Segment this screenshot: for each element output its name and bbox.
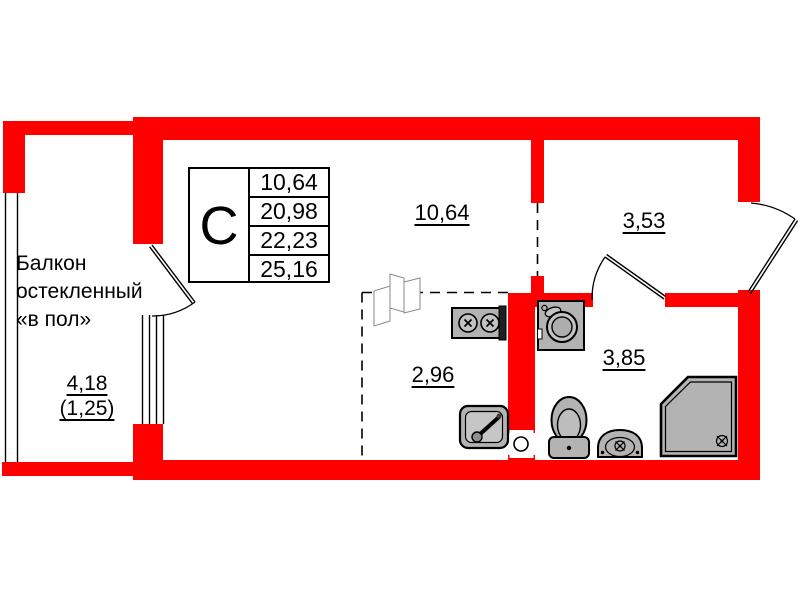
apartment-info-table: С 10,64 20,98 22,23 25,16: [188, 167, 330, 283]
entrance-door: [748, 203, 798, 294]
wall-balcony-bottom: [2, 462, 133, 476]
info-table-row: 25,16: [250, 256, 328, 283]
wall-balcony-divider-pier: [133, 117, 163, 244]
bathroom-door: [592, 255, 666, 301]
balcony-reduced-area-label: (1,25): [42, 397, 132, 421]
info-table-row: 22,23: [250, 227, 328, 256]
basin-bolt: [636, 451, 639, 454]
vent-circle: [514, 437, 528, 451]
door-leaf: [607, 255, 666, 297]
folding-door-panel: [374, 286, 390, 326]
kitchen-area-label: 2,96: [395, 363, 471, 387]
wall-balcony-left-pier: [3, 121, 25, 193]
washing-machine-icon: [538, 301, 585, 350]
washbasin-icon: [598, 430, 642, 457]
door-leaf: [605, 257, 664, 299]
wall-window-pier: [133, 424, 163, 464]
toilet-icon: [549, 397, 589, 458]
basin-bolt: [601, 451, 604, 454]
wall-stub-top-middle: [531, 139, 544, 203]
balcony-area-label: 4,18: [48, 372, 126, 396]
living-room-area-label: 10,64: [398, 201, 486, 225]
balcony-caption-line: «в пол»: [16, 306, 206, 334]
hallway-area-label: 3,53: [606, 209, 682, 233]
basin-body: [598, 430, 642, 457]
door-leaf: [751, 221, 798, 294]
info-table-row: 10,64: [250, 169, 328, 198]
washer-side-tab: [538, 329, 543, 339]
stove-icon: [452, 306, 506, 340]
kitchen-sink-icon: [460, 406, 508, 448]
ventilation-hole: [510, 430, 534, 458]
toilet-tank-button: [567, 446, 571, 450]
sink-faucet-base: [472, 432, 482, 442]
balcony-caption-line: остекленный: [16, 278, 206, 306]
wall-middle-column: [508, 293, 535, 433]
wall-right-bottom: [738, 290, 760, 480]
folding-door-sketch: [374, 274, 420, 326]
door-swing-arc: [592, 257, 605, 300]
stove-end-panel: [499, 306, 506, 340]
wall-top-main: [133, 117, 760, 140]
floor-plan-page: С 10,64 20,98 22,23 25,16 10,64 3,53 2,9…: [0, 0, 800, 600]
sink-faucet-tip: [497, 414, 502, 419]
folding-door-panel: [404, 278, 420, 313]
wall-right-top: [738, 117, 760, 202]
folding-door-panel: [390, 274, 404, 312]
wall-bottom-main: [133, 460, 760, 480]
door-leaf: [748, 219, 795, 292]
door-swing-arc: [751, 203, 795, 219]
shower-tray-icon: [661, 377, 736, 456]
balcony-caption: Балкон остекленный «в пол»: [16, 250, 206, 334]
bathroom-area-label: 3,85: [585, 346, 663, 370]
washer-door-inner: [552, 317, 572, 337]
balcony-caption-line: Балкон: [16, 250, 206, 278]
info-table-row: 20,98: [250, 198, 328, 227]
wall-bath-top-right: [665, 293, 738, 307]
